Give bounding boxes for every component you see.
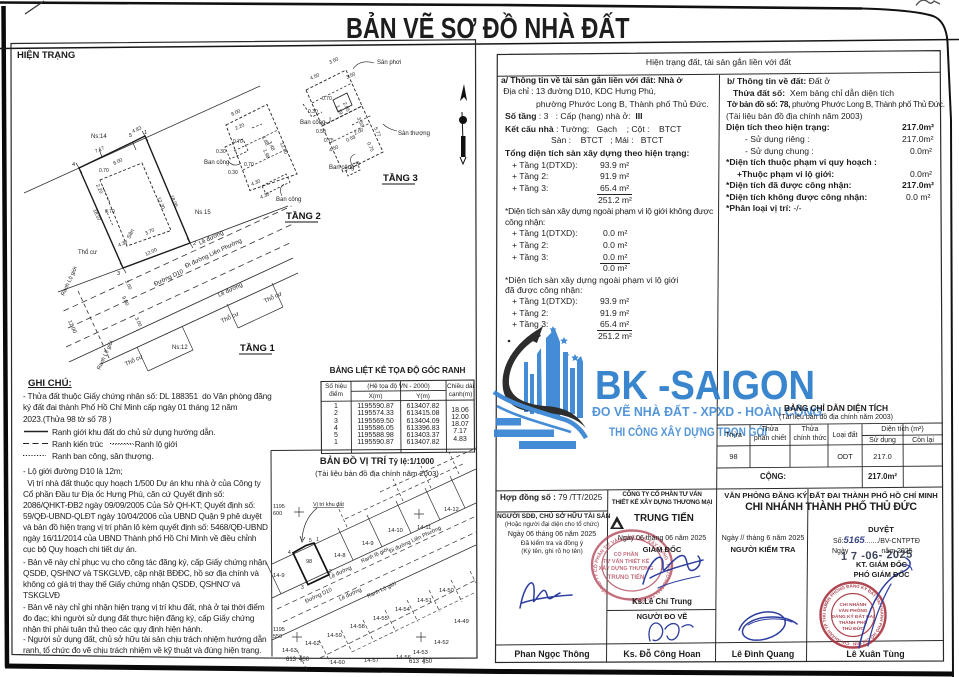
svg-text:0.70: 0.70	[233, 139, 243, 145]
svg-text:3.50: 3.50	[328, 56, 340, 66]
svg-text:12.30: 12.30	[155, 196, 166, 210]
svg-text:TRUNG TIẾN: TRUNG TIẾN	[608, 574, 645, 581]
svg-text:14-53: 14-53	[413, 650, 428, 656]
svg-text:14-50: 14-50	[439, 588, 454, 594]
svg-text:12.00: 12.00	[66, 319, 77, 334]
svg-text:2.20: 2.20	[234, 122, 246, 132]
svg-text:8.00: 8.00	[112, 157, 124, 167]
svg-text:2.00: 2.00	[353, 127, 365, 137]
svg-text:4.30: 4.30	[117, 239, 129, 249]
svg-text:TẦNG 1: TẦNG 1	[240, 343, 276, 354]
svg-text:Sân thượng: Sân thượng	[398, 131, 430, 137]
svg-text:14-9: 14-9	[273, 573, 285, 579]
svg-text:Thổ cư: Thổ cư	[78, 249, 97, 256]
svg-text:XÂY DỰNG THƯƠNG: XÂY DỰNG THƯƠNG	[599, 565, 654, 572]
svg-text:3.00: 3.00	[133, 316, 143, 328]
svg-text:14-63: 14-63	[282, 648, 297, 654]
svg-text:Sân phơi: Sân phơi	[377, 60, 401, 66]
svg-text:Lê đường: Lê đường	[338, 587, 362, 603]
svg-text:18.07: 18.07	[91, 208, 102, 222]
svg-text:14-62: 14-62	[305, 641, 320, 647]
svg-text:14-12: 14-12	[444, 507, 459, 513]
svg-text:CHI NHÁNH: CHI NHÁNH	[840, 601, 867, 608]
svg-text:18.06: 18.06	[168, 194, 179, 208]
svg-text:Lê đường: Lê đường	[328, 565, 352, 581]
svg-text:5: 5	[129, 133, 132, 139]
svg-text:THỦ ĐỨC: THỦ ĐỨC	[842, 625, 865, 632]
svg-text:0.30: 0.30	[308, 109, 318, 115]
svg-text:9.00: 9.00	[120, 295, 130, 307]
svg-text:3.70: 3.70	[144, 227, 156, 237]
svg-text:14-60: 14-60	[330, 660, 345, 666]
svg-text:Ns:14: Ns:14	[91, 134, 107, 140]
svg-text:4: 4	[288, 550, 291, 556]
svg-text:TƯ VẤN THIẾT KẾ: TƯ VẤN THIẾT KẾ	[603, 558, 650, 565]
svg-text:0.70: 0.70	[244, 162, 254, 168]
svg-text:600: 600	[273, 511, 282, 517]
svg-text:0.70: 0.70	[322, 96, 332, 102]
svg-text:1.98: 1.98	[261, 148, 271, 160]
svg-text:4: 4	[72, 162, 75, 168]
svg-text:14-8: 14-8	[334, 553, 346, 559]
svg-text:14-49: 14-49	[454, 619, 469, 625]
svg-text:14-9: 14-9	[362, 541, 374, 547]
svg-text:Ban công: Ban công	[204, 160, 229, 166]
svg-text:1195: 1195	[273, 627, 285, 633]
svg-text:Ban công: Ban công	[300, 120, 325, 126]
svg-text:12.50: 12.50	[278, 141, 289, 155]
svg-text:Thổ cư: Thổ cư	[220, 310, 240, 324]
svg-text:Thổ cư: Thổ cư	[124, 353, 144, 367]
svg-text:613450: 613450	[409, 659, 433, 665]
svg-text:4.50: 4.50	[309, 72, 321, 82]
svg-text:14-58: 14-58	[350, 624, 365, 630]
svg-text:TẦNG 2: TẦNG 2	[286, 211, 321, 222]
svg-text:THÀNH PHỐ: THÀNH PHỐ	[839, 619, 868, 626]
svg-text:0.50: 0.50	[316, 129, 326, 135]
svg-text:7.17: 7.17	[94, 145, 106, 155]
svg-text:1.25: 1.25	[350, 160, 362, 170]
svg-text:5.77: 5.77	[372, 126, 382, 138]
svg-text:Ranh Lộ giới: Ranh Lộ giới	[60, 266, 79, 297]
svg-text:Ns:12: Ns:12	[172, 345, 188, 351]
svg-text:Vị trí khu đất: Vị trí khu đất	[313, 502, 344, 508]
svg-text:Ban công: Ban công	[276, 197, 301, 203]
svg-text:0.70: 0.70	[99, 168, 109, 174]
svg-text:1195: 1195	[273, 504, 285, 510]
svg-text:3.00: 3.00	[123, 279, 133, 291]
svg-text:14-10: 14-10	[388, 528, 403, 534]
svg-text:14-55: 14-55	[373, 616, 388, 622]
svg-text:14-57: 14-57	[364, 658, 379, 664]
svg-text:4.30: 4.30	[250, 178, 262, 188]
svg-text:98: 98	[306, 559, 312, 565]
svg-text:Thổ cư: Thổ cư	[263, 290, 283, 304]
svg-text:0.70: 0.70	[105, 209, 115, 215]
svg-text:TẦNG 3: TẦNG 3	[383, 173, 418, 184]
svg-text:1: 1	[316, 537, 319, 543]
svg-text:0.75: 0.75	[365, 141, 375, 153]
svg-text:Đường D10: Đường D10	[153, 269, 185, 288]
svg-text:Ns 15: Ns 15	[195, 210, 211, 216]
svg-text:Ranh Lộ giới: Ranh Lộ giới	[366, 581, 397, 600]
svg-text:2: 2	[193, 241, 196, 247]
svg-text:0.30: 0.30	[216, 149, 226, 155]
svg-text:14-51: 14-51	[417, 598, 432, 604]
svg-text:4.83: 4.83	[131, 125, 143, 135]
svg-text:0.75: 0.75	[324, 138, 334, 144]
svg-text:BK -SAIGON: BK -SAIGON	[595, 362, 815, 408]
svg-text:5: 5	[309, 538, 312, 544]
svg-text:550: 550	[273, 634, 282, 640]
svg-text:Lề đường: Lề đường	[217, 282, 243, 299]
svg-text:3: 3	[301, 585, 304, 591]
svg-text:0.30: 0.30	[228, 170, 238, 176]
svg-text:14-52: 14-52	[434, 640, 449, 646]
svg-text:Sân: Sân	[126, 228, 136, 239]
svg-text:4.30: 4.30	[259, 191, 271, 201]
svg-text:14-59: 14-59	[327, 633, 342, 639]
svg-text:3: 3	[117, 271, 120, 277]
svg-text:Ranh lộ giới: Ranh lộ giới	[360, 547, 389, 565]
svg-text:8.00: 8.00	[230, 108, 242, 118]
svg-text:1: 1	[144, 130, 147, 136]
svg-text:14-54: 14-54	[395, 607, 411, 613]
